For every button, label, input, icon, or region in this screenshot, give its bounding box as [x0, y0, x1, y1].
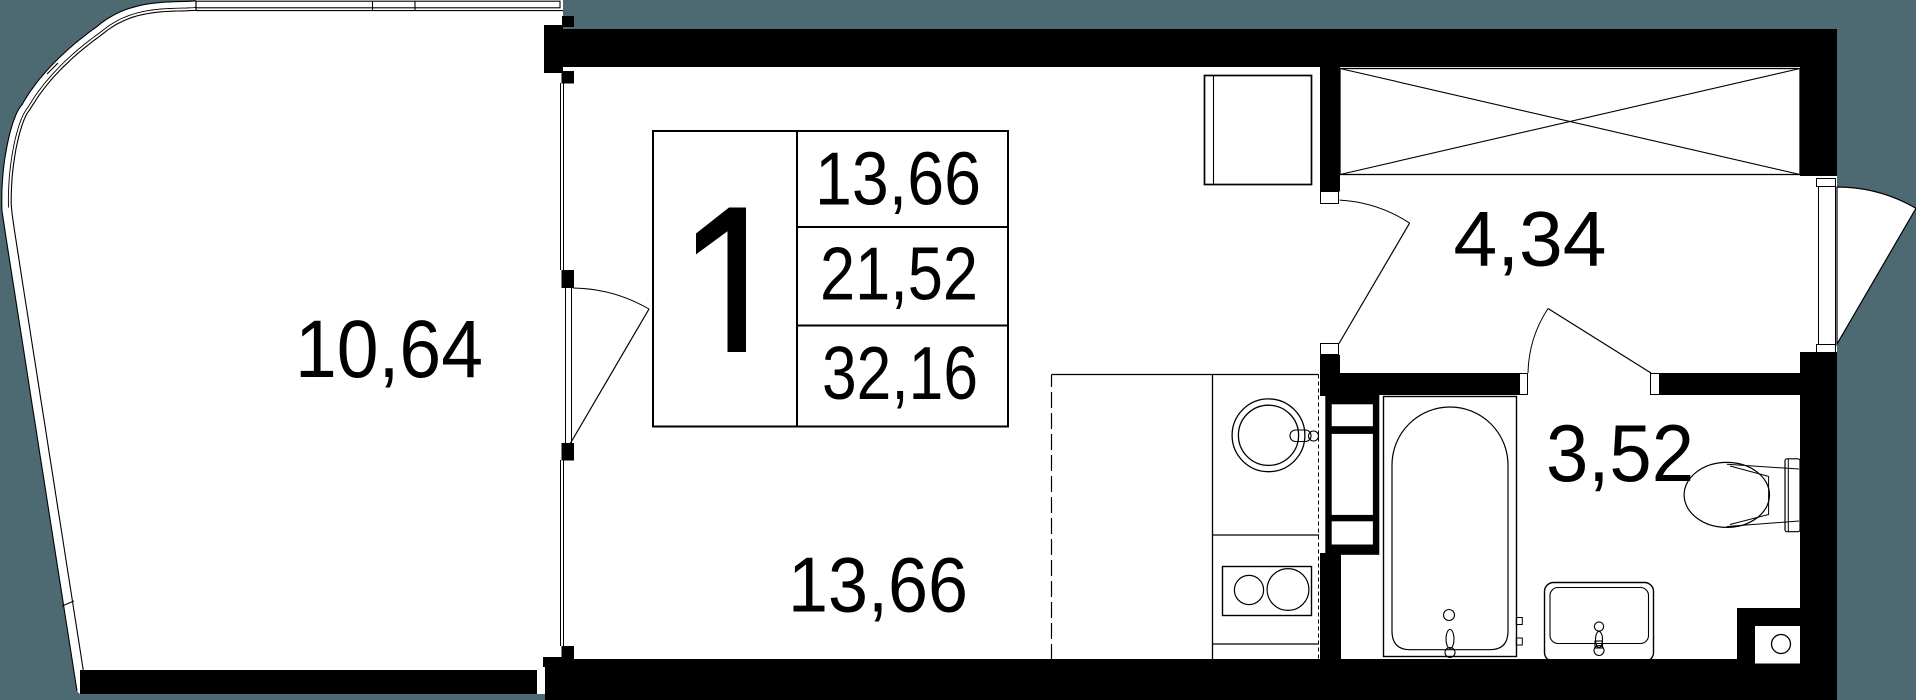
svg-text:4,34: 4,34 — [1454, 197, 1607, 283]
svg-text:21,52: 21,52 — [820, 231, 978, 315]
svg-text:3,52: 3,52 — [1546, 409, 1694, 499]
svg-text:32,16: 32,16 — [822, 331, 978, 415]
svg-text:13,66: 13,66 — [815, 137, 981, 221]
svg-text:10,64: 10,64 — [295, 304, 483, 395]
svg-text:13,66: 13,66 — [788, 541, 968, 629]
